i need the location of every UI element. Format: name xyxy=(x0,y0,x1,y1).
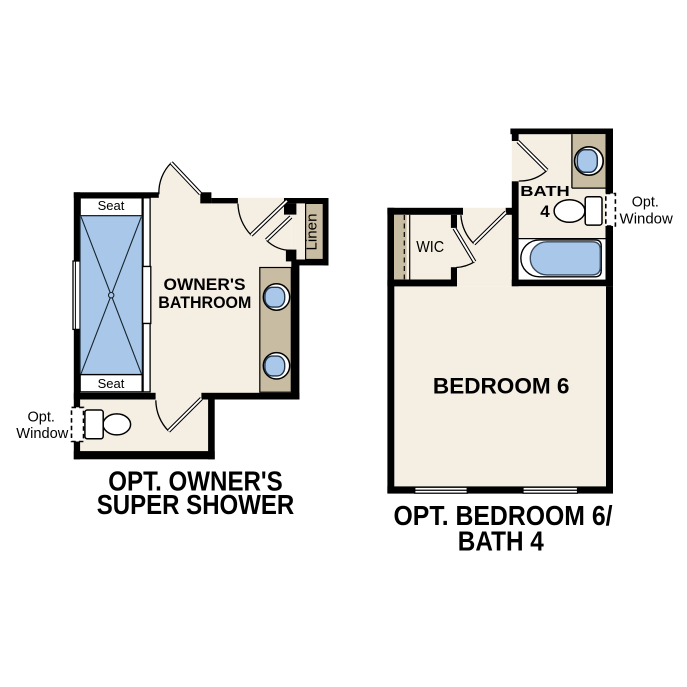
svg-text:Window: Window xyxy=(16,425,68,442)
svg-text:4: 4 xyxy=(540,202,550,221)
svg-text:WIC: WIC xyxy=(416,239,444,256)
svg-text:BEDROOM 6: BEDROOM 6 xyxy=(433,374,570,399)
svg-text:Linen: Linen xyxy=(304,214,320,251)
svg-text:BATHROOM: BATHROOM xyxy=(158,293,251,312)
svg-text:SUPER SHOWER: SUPER SHOWER xyxy=(97,489,295,520)
svg-text:OWNER'S: OWNER'S xyxy=(164,275,246,294)
svg-text:Seat: Seat xyxy=(98,376,125,391)
svg-text:Seat: Seat xyxy=(98,198,125,213)
svg-text:Window: Window xyxy=(620,211,673,228)
svg-text:Opt.: Opt. xyxy=(27,408,55,425)
svg-text:BATH 4: BATH 4 xyxy=(458,525,544,556)
svg-text:BATH: BATH xyxy=(520,183,570,200)
svg-text:Opt.: Opt. xyxy=(632,193,659,210)
